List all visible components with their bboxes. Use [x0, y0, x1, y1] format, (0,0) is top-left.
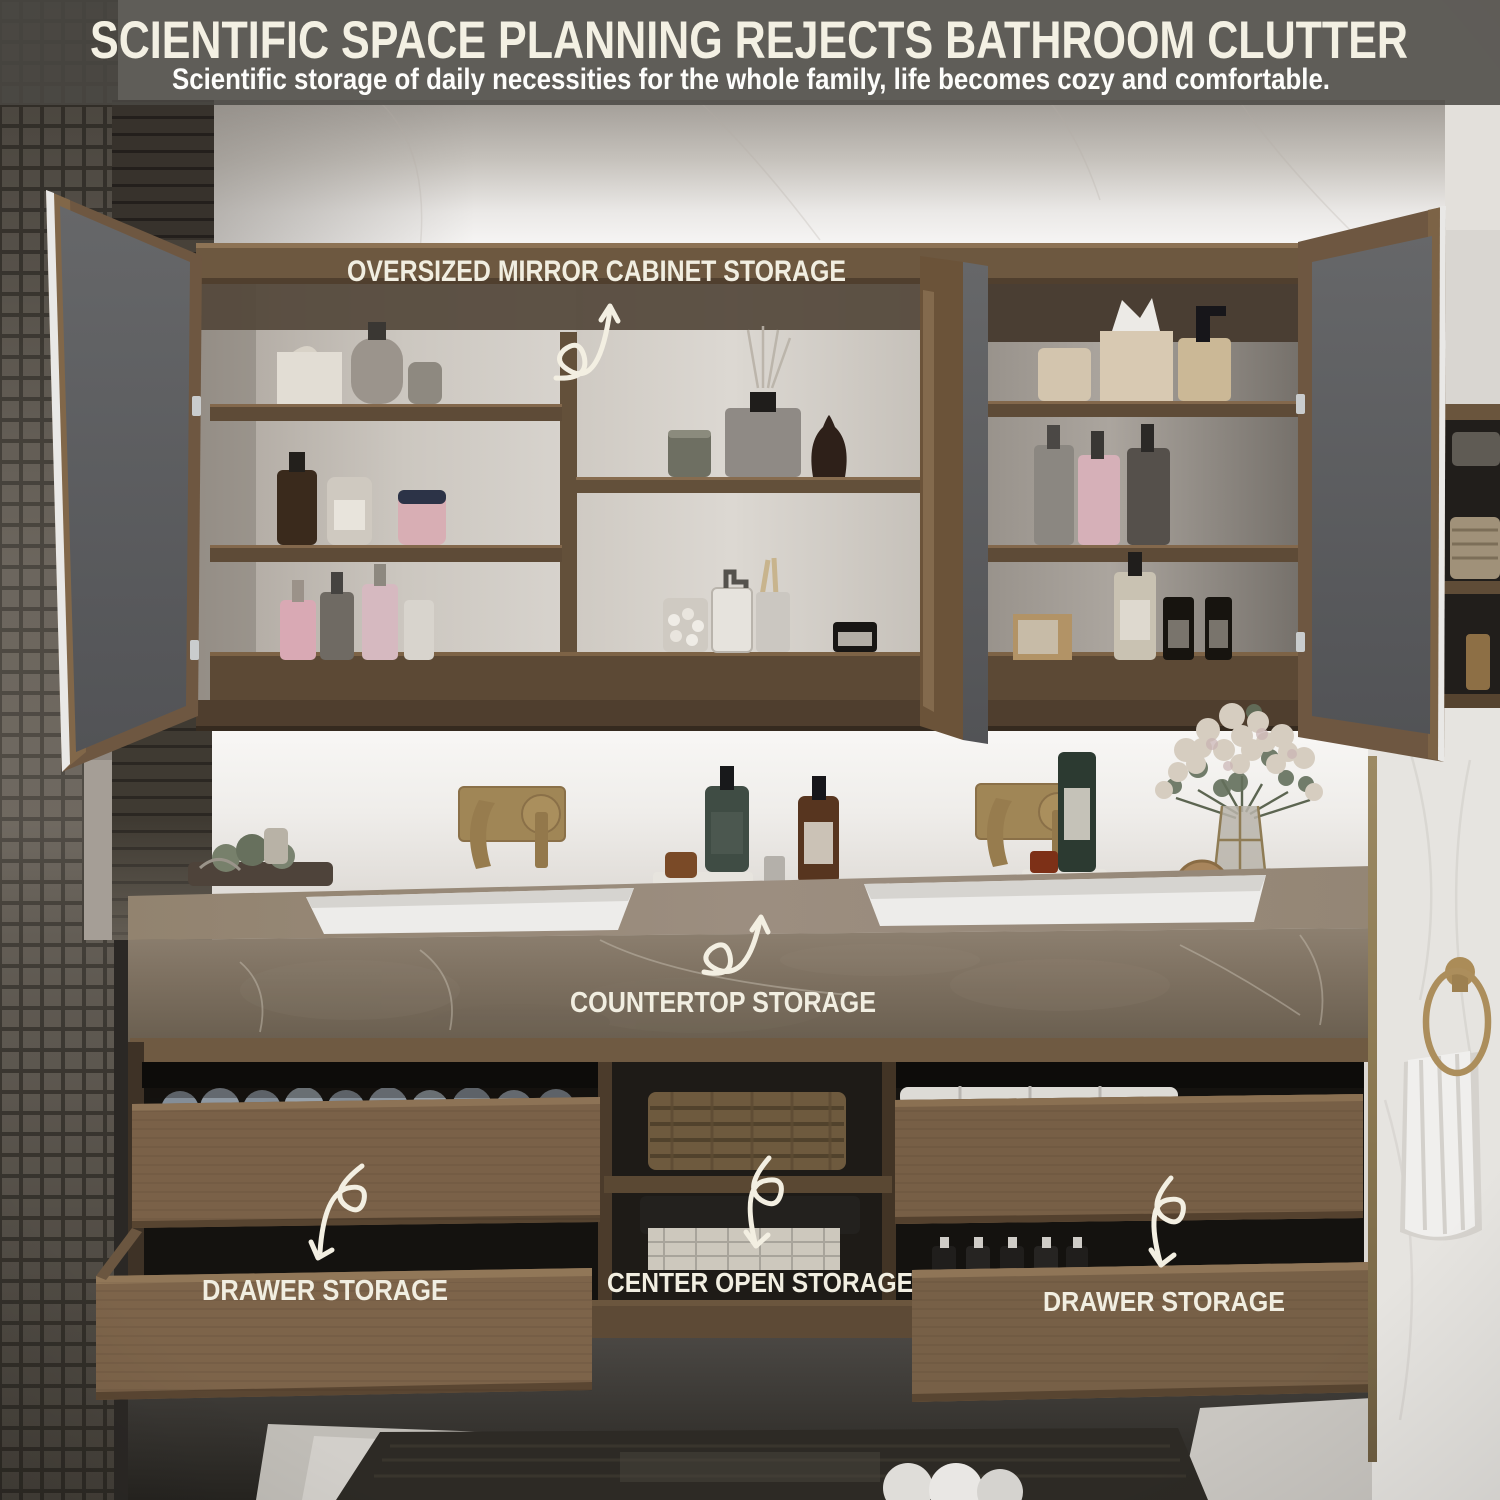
svg-text:Scientific storage of daily ne: Scientific storage of daily necessities …: [172, 63, 1330, 96]
svg-text:DRAWER STORAGE: DRAWER STORAGE: [1043, 1286, 1285, 1317]
svg-text:CENTER OPEN STORAGE: CENTER OPEN STORAGE: [607, 1267, 913, 1298]
svg-text:OVERSIZED MIRROR CABINET STORA: OVERSIZED MIRROR CABINET STORAGE: [347, 255, 846, 288]
svg-text:SCIENTIFIC SPACE PLANNING REJE: SCIENTIFIC SPACE PLANNING REJECTS BATHRO…: [90, 11, 1408, 70]
svg-text:DRAWER STORAGE: DRAWER STORAGE: [202, 1275, 448, 1307]
svg-text:COUNTERTOP STORAGE: COUNTERTOP STORAGE: [570, 987, 876, 1019]
